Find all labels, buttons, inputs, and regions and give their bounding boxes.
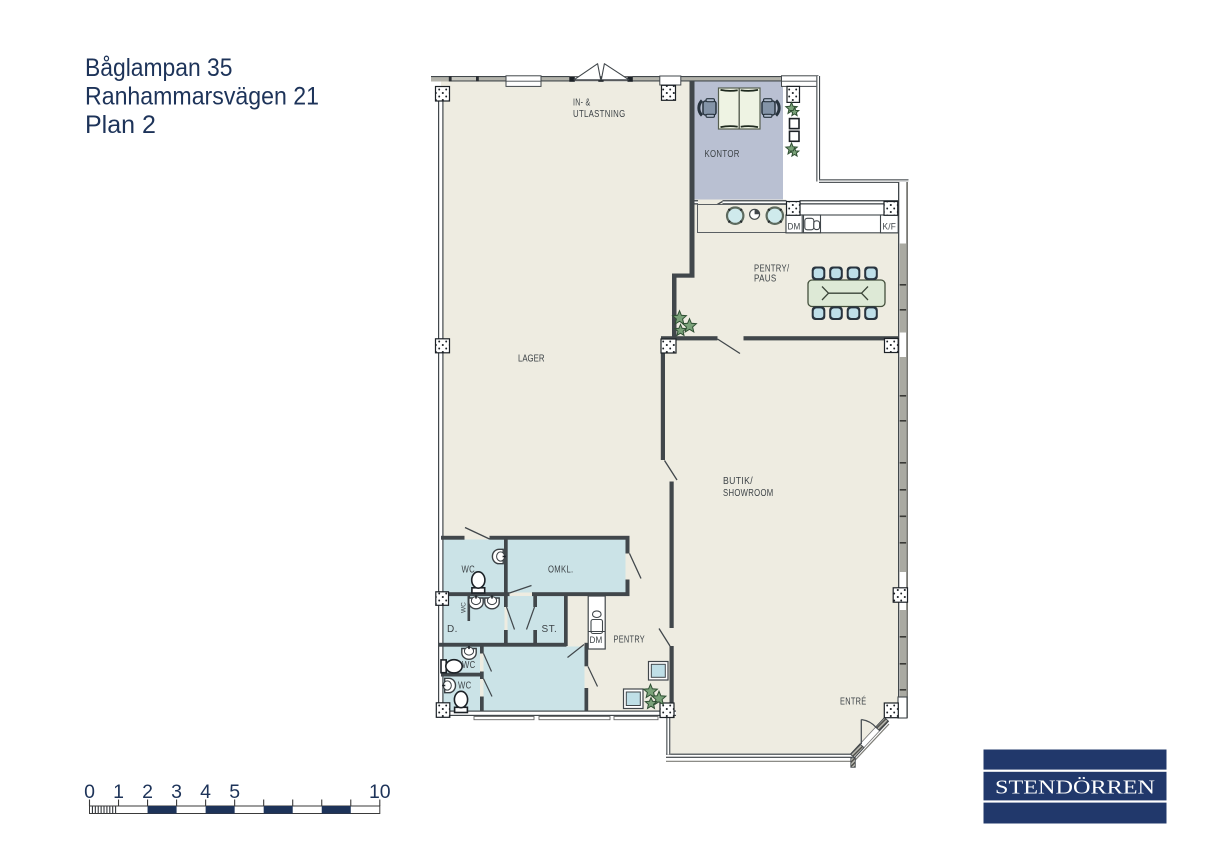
svg-text:PAUS: PAUS [754,274,777,285]
svg-text:WC: WC [461,602,468,613]
svg-text:10: 10 [369,781,391,803]
svg-text:ENTRÉ: ENTRÉ [840,695,867,708]
svg-text:LAGER: LAGER [518,353,545,365]
svg-text:WC: WC [462,660,476,671]
svg-text:Plan 2: Plan 2 [85,111,156,139]
svg-text:PENTRY: PENTRY [614,635,646,646]
svg-text:ST.: ST. [542,624,558,635]
svg-text:3: 3 [171,781,182,803]
svg-text:IN- &: IN- & [573,98,591,109]
svg-text:SHOWROOM: SHOWROOM [723,488,774,499]
svg-text:4: 4 [200,781,211,803]
svg-text:UTLASTNING: UTLASTNING [573,109,626,120]
svg-text:STENDÖRREN: STENDÖRREN [995,776,1155,799]
svg-text:WC: WC [462,565,476,576]
svg-text:K/F: K/F [883,222,897,232]
svg-text:5: 5 [229,781,240,803]
svg-text:WC: WC [458,681,472,692]
svg-text:D.: D. [447,624,458,635]
svg-text:OMKL.: OMKL. [548,565,574,576]
svg-text:BUTIK/: BUTIK/ [723,476,753,487]
svg-text:0: 0 [84,781,95,803]
svg-text:Ranhammarsvägen 21: Ranhammarsvägen 21 [85,83,319,111]
svg-text:2: 2 [142,781,153,803]
svg-text:KONTOR: KONTOR [705,149,740,160]
svg-text:DM: DM [590,635,603,645]
svg-text:Båglampan 35: Båglampan 35 [85,54,233,82]
svg-text:1: 1 [113,781,124,803]
svg-text:DM: DM [788,222,801,232]
